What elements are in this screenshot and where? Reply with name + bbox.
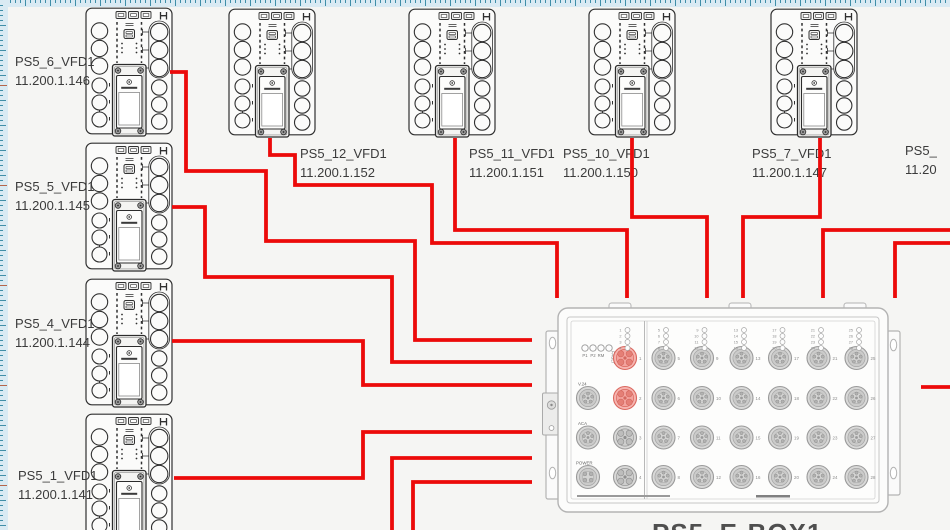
switch-port[interactable] bbox=[691, 387, 714, 410]
network-cable[interactable] bbox=[455, 138, 627, 298]
switch-text: RM bbox=[598, 353, 605, 358]
switch-text: 25 bbox=[849, 329, 853, 333]
network-cable[interactable] bbox=[743, 138, 820, 298]
switch-text: 3 bbox=[619, 341, 621, 345]
switch-port[interactable] bbox=[807, 426, 830, 449]
network-cable[interactable] bbox=[895, 243, 950, 298]
port-led bbox=[625, 346, 630, 351]
port-led bbox=[625, 334, 630, 339]
switch-text: 25 bbox=[871, 356, 876, 361]
switch-text: 15 bbox=[734, 341, 738, 345]
switch-port[interactable] bbox=[807, 466, 830, 489]
switch-port[interactable] bbox=[807, 387, 830, 410]
port-led bbox=[664, 340, 669, 345]
port-led bbox=[702, 334, 707, 339]
network-cable[interactable] bbox=[632, 138, 707, 298]
status-led bbox=[598, 345, 604, 351]
port-led bbox=[780, 328, 785, 333]
switch-text: 27 bbox=[849, 341, 853, 345]
switch-text: 10 bbox=[716, 396, 721, 401]
port-led bbox=[742, 340, 747, 345]
port-led bbox=[857, 328, 862, 333]
network-cable[interactable] bbox=[413, 482, 532, 530]
switch-port[interactable] bbox=[614, 347, 637, 370]
switch-text: 17 bbox=[794, 356, 799, 361]
status-led bbox=[582, 345, 588, 351]
switch-text: 7 bbox=[658, 341, 660, 345]
switch-text: 2 bbox=[619, 335, 621, 339]
switch-text: 13 bbox=[734, 329, 738, 333]
switch-text: 14 bbox=[734, 335, 738, 339]
switch-text: 14 bbox=[756, 396, 761, 401]
switch-port[interactable] bbox=[614, 466, 637, 489]
switch-text: P2 bbox=[590, 353, 596, 358]
switch-port[interactable] bbox=[730, 426, 753, 449]
port-led bbox=[664, 328, 669, 333]
switch-text: 20 bbox=[772, 347, 776, 351]
switch-port[interactable] bbox=[652, 387, 675, 410]
switch-text: 12 bbox=[716, 475, 721, 480]
switch-port[interactable] bbox=[577, 426, 600, 449]
switch-text: 23 bbox=[811, 341, 815, 345]
switch-text: 23 bbox=[833, 435, 838, 440]
switch-port[interactable] bbox=[730, 387, 753, 410]
switch-text: 11 bbox=[716, 435, 721, 440]
switch-text: 13 bbox=[756, 356, 761, 361]
switch-text: 22 bbox=[833, 396, 838, 401]
port-led bbox=[702, 340, 707, 345]
switch-text: 26 bbox=[871, 396, 876, 401]
switch-port[interactable] bbox=[652, 466, 675, 489]
network-cable[interactable] bbox=[170, 72, 532, 340]
port-led bbox=[780, 346, 785, 351]
switch-text: 16 bbox=[756, 475, 761, 480]
switch-text: 24 bbox=[833, 475, 838, 480]
switch-text: 21 bbox=[811, 329, 815, 333]
switch-port[interactable] bbox=[652, 347, 675, 370]
port-led bbox=[857, 346, 862, 351]
port-led bbox=[625, 328, 630, 333]
switch-text: 21 bbox=[833, 356, 838, 361]
switch-port[interactable] bbox=[691, 466, 714, 489]
port-led bbox=[702, 328, 707, 333]
switch-caption: PS5_E-BOX1 bbox=[652, 518, 822, 530]
switch-text: 27 bbox=[871, 435, 876, 440]
switch-text: 19 bbox=[772, 341, 776, 345]
switch-text: 26 bbox=[849, 335, 853, 339]
switch-text: V.24 bbox=[578, 382, 587, 387]
port-led bbox=[702, 346, 707, 351]
port-led bbox=[742, 328, 747, 333]
port-led bbox=[819, 340, 824, 345]
switch-port[interactable] bbox=[614, 426, 637, 449]
switch-text: 9 bbox=[696, 329, 698, 333]
switch-port[interactable] bbox=[845, 466, 868, 489]
switch-text: 6 bbox=[658, 335, 660, 339]
switch-port[interactable] bbox=[691, 426, 714, 449]
port-led bbox=[780, 340, 785, 345]
switch-text: P1 bbox=[582, 353, 588, 358]
port-led bbox=[742, 334, 747, 339]
port-led bbox=[819, 334, 824, 339]
switch-text: 28 bbox=[871, 475, 876, 480]
switch-text: 12 bbox=[694, 347, 698, 351]
switch-text: 28 bbox=[849, 347, 853, 351]
switch-port[interactable] bbox=[577, 466, 600, 489]
switch-port[interactable] bbox=[769, 426, 792, 449]
switch-text: 1 bbox=[619, 329, 621, 333]
switch-text: 22 bbox=[811, 335, 815, 339]
switch-port[interactable] bbox=[652, 426, 675, 449]
switch-port[interactable] bbox=[845, 426, 868, 449]
port-led bbox=[742, 346, 747, 351]
diagram-canvas: PS5_6_VFD111.200.1.146 bbox=[0, 0, 950, 530]
switch-text: 20 bbox=[794, 475, 799, 480]
port-led bbox=[664, 346, 669, 351]
switch-text: 11 bbox=[695, 341, 699, 345]
status-led bbox=[590, 345, 596, 351]
ethernet-switch[interactable]: P1P2RMFAULTV.24ACAPOWER11223344556677889… bbox=[540, 295, 912, 530]
port-led bbox=[625, 340, 630, 345]
switch-port[interactable] bbox=[730, 466, 753, 489]
switch-text: 15 bbox=[756, 435, 761, 440]
switch-text: 10 bbox=[694, 335, 698, 339]
port-led bbox=[819, 346, 824, 351]
switch-text: 4 bbox=[619, 347, 621, 351]
switch-text: 19 bbox=[794, 435, 799, 440]
switch-text: 24 bbox=[811, 347, 815, 351]
switch-port[interactable] bbox=[577, 387, 600, 410]
switch-text: 17 bbox=[772, 329, 776, 333]
port-led bbox=[780, 334, 785, 339]
switch-text: ACA bbox=[578, 421, 587, 426]
switch-text: 8 bbox=[658, 347, 660, 351]
port-led bbox=[857, 340, 862, 345]
network-cable[interactable] bbox=[823, 230, 950, 298]
switch-text: 16 bbox=[734, 347, 738, 351]
switch-port[interactable] bbox=[845, 387, 868, 410]
switch-text: 5 bbox=[658, 329, 660, 333]
network-cable[interactable] bbox=[174, 432, 532, 478]
port-led bbox=[664, 334, 669, 339]
switch-port[interactable] bbox=[769, 387, 792, 410]
switch-text: 18 bbox=[794, 396, 799, 401]
port-led bbox=[819, 328, 824, 333]
port-led bbox=[857, 334, 862, 339]
switch-text: POWER bbox=[576, 461, 593, 466]
switch-port[interactable] bbox=[769, 466, 792, 489]
switch-text: 18 bbox=[772, 335, 776, 339]
switch-port[interactable] bbox=[614, 387, 637, 410]
